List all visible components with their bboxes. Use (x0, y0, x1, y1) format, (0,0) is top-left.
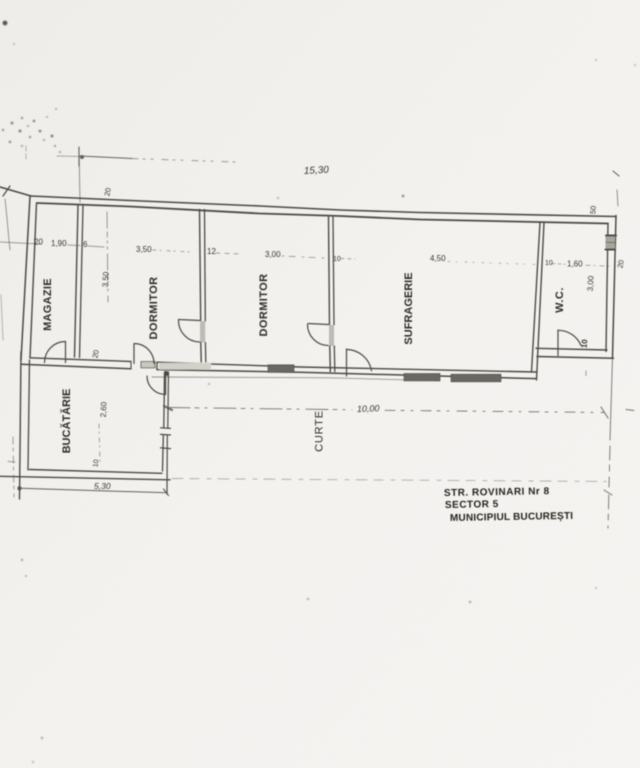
svg-text:3,50: 3,50 (101, 271, 111, 288)
svg-text:W.C.: W.C. (554, 287, 566, 313)
svg-text:12: 12 (207, 247, 216, 256)
svg-text:STR. ROVINARI Nr 8: STR. ROVINARI Nr 8 (444, 486, 550, 499)
svg-text:1,90: 1,90 (51, 239, 67, 248)
svg-text:20: 20 (615, 259, 625, 269)
svg-text:20: 20 (103, 187, 113, 197)
svg-text:10: 10 (545, 260, 553, 267)
svg-text:3,00: 3,00 (586, 275, 596, 292)
svg-text:10: 10 (580, 338, 590, 348)
svg-text:MUNICIPIUL BUCUREȘTI: MUNICIPIUL BUCUREȘTI (450, 511, 573, 524)
svg-text:20: 20 (90, 349, 100, 359)
svg-text:MAGAZIE: MAGAZIE (42, 278, 54, 331)
svg-text:3,00: 3,00 (265, 250, 281, 259)
svg-text:20: 20 (34, 238, 43, 247)
svg-text:1,60: 1,60 (567, 260, 583, 269)
svg-text:50: 50 (588, 205, 598, 214)
svg-text:2,60: 2,60 (99, 401, 109, 418)
svg-text:10,00: 10,00 (357, 403, 380, 414)
svg-text:4,50: 4,50 (430, 254, 446, 263)
svg-text:3,50: 3,50 (136, 245, 152, 254)
svg-text:10: 10 (333, 256, 341, 263)
svg-text:CURTE: CURTE (314, 410, 326, 452)
svg-text:6: 6 (83, 240, 88, 249)
svg-text:10: 10 (93, 459, 101, 467)
svg-text:DORMITOR: DORMITOR (148, 277, 160, 340)
svg-text:15,30: 15,30 (304, 165, 330, 177)
svg-text:5,30: 5,30 (94, 481, 111, 491)
svg-text:DORMITOR: DORMITOR (258, 274, 270, 337)
svg-text:BUCĂTĂRIE: BUCĂTĂRIE (60, 389, 73, 454)
svg-text:SECTOR 5: SECTOR 5 (445, 499, 499, 511)
svg-text:SUFRAGERIE: SUFRAGERIE (403, 272, 415, 344)
